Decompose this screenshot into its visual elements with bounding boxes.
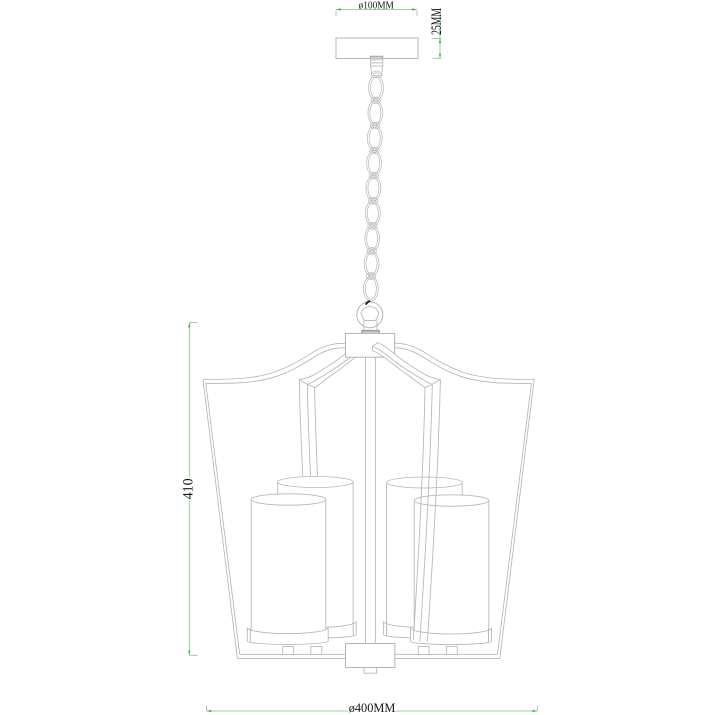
svg-text:410: 410	[180, 478, 196, 499]
svg-text:25MM: 25MM	[428, 8, 444, 35]
svg-text:ø400MM: ø400MM	[349, 701, 396, 715]
svg-text:ø100MM: ø100MM	[359, 0, 395, 12]
